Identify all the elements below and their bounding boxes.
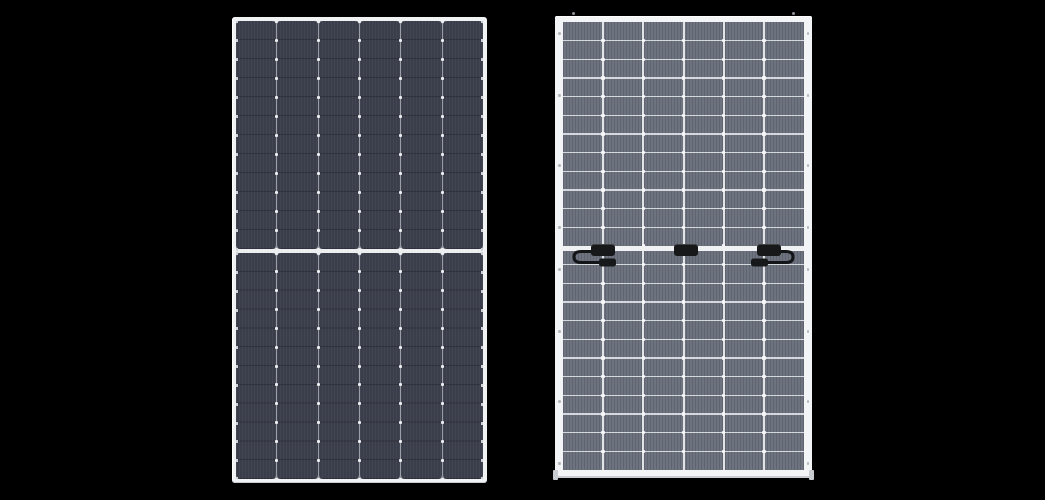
solder-dot [275, 21, 278, 23]
solder-dot [317, 191, 320, 194]
solder-dot [441, 440, 444, 443]
solder-dot [399, 229, 402, 232]
cell-column-segment [401, 21, 441, 249]
solder-dot [275, 210, 278, 213]
solder-dot [317, 172, 320, 175]
solder-dot [358, 346, 361, 349]
cell-column-segment [236, 253, 276, 479]
solder-dot [358, 77, 361, 80]
frame-screw [558, 164, 561, 167]
frame-screw [807, 330, 810, 333]
frame-screw [807, 462, 810, 465]
cable-connector-right [751, 259, 768, 267]
solder-dot [358, 172, 361, 175]
edge-tick [236, 403, 238, 406]
solder-dot [441, 153, 444, 156]
edge-tick [236, 422, 238, 425]
edge-tick [481, 96, 483, 99]
solder-dot [441, 402, 444, 405]
edge-tick [481, 229, 483, 232]
edge-tick [236, 172, 238, 175]
solder-dot [399, 153, 402, 156]
solder-dot [275, 248, 278, 251]
solder-dot [441, 327, 444, 330]
solder-dot [399, 478, 402, 480]
solder-dot [275, 172, 278, 175]
edge-tick [236, 309, 238, 312]
solder-dot [317, 289, 320, 292]
solder-dot [275, 77, 278, 80]
solder-dot [358, 115, 361, 118]
cell-column-segment [277, 253, 317, 479]
frame-screw [558, 330, 561, 333]
frame-screw [558, 226, 561, 229]
solder-dot [317, 229, 320, 232]
edge-tick [236, 21, 238, 23]
solder-dot [441, 21, 444, 23]
solder-dot [317, 478, 320, 480]
solder-dot [275, 96, 278, 99]
solder-dot [275, 229, 278, 232]
solder-dot [317, 115, 320, 118]
solder-dot [441, 229, 444, 232]
solder-dot [441, 459, 444, 462]
solder-dot [399, 191, 402, 194]
solder-dot [317, 383, 320, 386]
edge-tick [236, 134, 238, 137]
solder-dot [441, 115, 444, 118]
panel-cells-area [563, 22, 804, 470]
solder-dot [399, 115, 402, 118]
solder-dot [317, 134, 320, 137]
solder-dot [358, 365, 361, 368]
edge-tick [481, 365, 483, 368]
frame-screw [558, 32, 561, 35]
solar-panel-front-view [232, 17, 487, 483]
edge-tick [481, 252, 483, 255]
solder-dot [399, 365, 402, 368]
solder-dot [399, 58, 402, 61]
solder-dot [275, 346, 278, 349]
solder-dot [317, 402, 320, 405]
edge-tick [481, 384, 483, 387]
edge-tick [481, 309, 483, 312]
frame-screw [807, 226, 810, 229]
solder-dot [399, 96, 402, 99]
solder-dot [317, 365, 320, 368]
edge-tick [481, 403, 483, 406]
solder-dot [275, 191, 278, 194]
edge-tick [481, 153, 483, 156]
solder-dot [275, 478, 278, 480]
solder-dot [275, 58, 278, 61]
solder-dot [399, 134, 402, 137]
frame-screw [807, 94, 810, 97]
solder-dot [441, 58, 444, 61]
edge-tick [481, 39, 483, 42]
solder-dot [358, 21, 361, 23]
frame-screw [807, 400, 810, 403]
frame-screw [558, 400, 561, 403]
solder-dot [317, 248, 320, 251]
solder-dot [441, 308, 444, 311]
frame-screw [807, 268, 810, 271]
solder-dot [399, 346, 402, 349]
solder-dot [275, 153, 278, 156]
edge-tick [481, 58, 483, 61]
edge-tick [481, 290, 483, 293]
edge-tick [236, 229, 238, 232]
edge-tick [236, 248, 238, 251]
solder-dot [441, 39, 444, 42]
solder-dot [317, 210, 320, 213]
solder-dot [358, 134, 361, 137]
solder-dot [441, 191, 444, 194]
edge-tick [236, 346, 238, 349]
solder-dot [317, 77, 320, 80]
edge-tick [481, 327, 483, 330]
edge-tick [236, 153, 238, 156]
cell-column-segment [401, 253, 441, 479]
solder-dot [275, 365, 278, 368]
solder-dot [441, 383, 444, 386]
solder-dot [441, 210, 444, 213]
edge-tick [236, 39, 238, 42]
solder-dot [317, 21, 320, 23]
edge-tick [236, 58, 238, 61]
solder-dot [358, 459, 361, 462]
cell-column-segment [360, 21, 400, 249]
solder-dot [441, 289, 444, 292]
solder-dot [317, 346, 320, 349]
solder-dot [317, 327, 320, 330]
junction-box [674, 244, 698, 256]
edge-tick [236, 477, 238, 479]
solder-dot [399, 248, 402, 251]
edge-tick [236, 327, 238, 330]
solder-dot [317, 39, 320, 42]
edge-tick [481, 21, 483, 23]
edge-tick [481, 346, 483, 349]
edge-tick [481, 422, 483, 425]
solder-dot [317, 58, 320, 61]
solder-dot [317, 270, 320, 273]
edge-tick [236, 210, 238, 213]
junction-box [757, 244, 781, 256]
solder-dot [358, 39, 361, 42]
edge-tick [481, 248, 483, 251]
solder-dot [441, 252, 444, 255]
corner-foot [553, 470, 558, 480]
solder-dot [358, 248, 361, 251]
edge-tick [481, 172, 483, 175]
edge-tick [481, 134, 483, 137]
solder-dot [399, 172, 402, 175]
frame-screw [807, 32, 810, 35]
solder-dot [441, 96, 444, 99]
edge-tick [236, 365, 238, 368]
solder-dot [358, 421, 361, 424]
edge-tick [481, 115, 483, 118]
product-image-canvas [0, 0, 1045, 500]
edge-tick [236, 440, 238, 443]
solder-dot [358, 327, 361, 330]
solder-dot [399, 21, 402, 23]
edge-tick [481, 477, 483, 479]
mounting-speck [572, 12, 575, 15]
solder-dot [358, 252, 361, 255]
frame-screw [558, 268, 561, 271]
solder-dot [399, 77, 402, 80]
solder-dot [441, 248, 444, 251]
edge-tick [481, 459, 483, 462]
solar-panel-back-view [555, 16, 812, 478]
solder-dot [399, 210, 402, 213]
solder-dot [317, 459, 320, 462]
solder-dot [358, 96, 361, 99]
junction-box [591, 244, 615, 256]
edge-tick [481, 77, 483, 80]
frame-screw [807, 164, 810, 167]
cable-connector-left [599, 259, 616, 267]
solder-dot [317, 153, 320, 156]
edge-tick [481, 191, 483, 194]
edge-tick [236, 77, 238, 80]
frame-screw [558, 462, 561, 465]
solder-dot [275, 115, 278, 118]
solder-dot [317, 440, 320, 443]
solder-dot [441, 134, 444, 137]
solder-dot [358, 153, 361, 156]
cell-column-segment [236, 21, 276, 249]
solder-dot [275, 440, 278, 443]
edge-tick [236, 290, 238, 293]
cell-column-segment [277, 21, 317, 249]
edge-tick [236, 271, 238, 274]
edge-tick [236, 191, 238, 194]
solder-dot [441, 77, 444, 80]
solder-dot [358, 210, 361, 213]
solder-dot [358, 229, 361, 232]
edge-tick [481, 440, 483, 443]
solder-dot [275, 134, 278, 137]
solder-dot [399, 459, 402, 462]
cell-column-segment [319, 21, 359, 249]
edge-tick [236, 96, 238, 99]
solder-dot [317, 308, 320, 311]
solder-dot [441, 172, 444, 175]
panel-cells-area [236, 21, 483, 479]
edge-tick [481, 271, 483, 274]
solder-dot [358, 478, 361, 480]
solder-dot [358, 308, 361, 311]
solder-dot [275, 252, 278, 255]
cell-column-segment [443, 253, 483, 479]
cell-column-segment [360, 253, 400, 479]
solder-dot [441, 421, 444, 424]
solder-dot [358, 402, 361, 405]
solder-dot [358, 289, 361, 292]
solder-dot [441, 478, 444, 480]
solder-dot [317, 421, 320, 424]
solder-dot [399, 39, 402, 42]
solder-dot [399, 252, 402, 255]
solder-dot [358, 440, 361, 443]
corner-foot [809, 470, 814, 480]
solder-dot [399, 440, 402, 443]
solder-dot [441, 365, 444, 368]
edge-tick [236, 115, 238, 118]
solder-dot [441, 270, 444, 273]
solder-dot [317, 96, 320, 99]
frame-screw [558, 94, 561, 97]
edge-tick [236, 252, 238, 255]
solder-dot [275, 459, 278, 462]
edge-tick [236, 384, 238, 387]
edge-tick [236, 459, 238, 462]
solder-dot [317, 252, 320, 255]
mounting-speck [792, 12, 795, 15]
solder-dot [275, 39, 278, 42]
cell-column-segment [443, 21, 483, 249]
cell-column-segment [319, 253, 359, 479]
solder-dot [441, 346, 444, 349]
solder-dot [275, 327, 278, 330]
edge-tick [481, 210, 483, 213]
solder-dot [358, 58, 361, 61]
solder-dot [358, 191, 361, 194]
solder-dot [399, 327, 402, 330]
